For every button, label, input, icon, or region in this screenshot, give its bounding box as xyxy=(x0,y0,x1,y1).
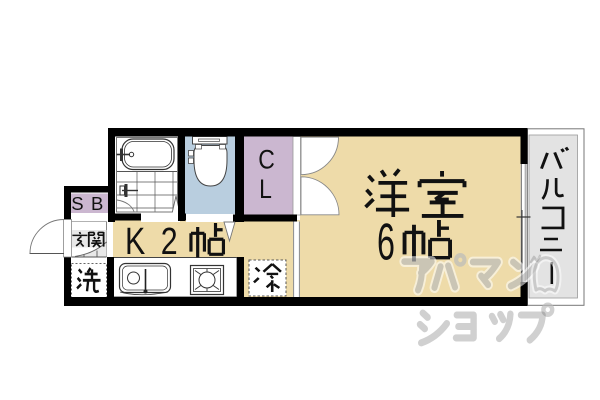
svg-text:S: S xyxy=(71,193,83,214)
svg-text:K: K xyxy=(125,221,145,263)
svg-text:L: L xyxy=(259,174,272,204)
svg-text:6: 6 xyxy=(377,214,395,272)
svg-text:2: 2 xyxy=(161,221,178,263)
svg-text:B: B xyxy=(91,193,103,214)
svg-text:C: C xyxy=(258,145,275,175)
